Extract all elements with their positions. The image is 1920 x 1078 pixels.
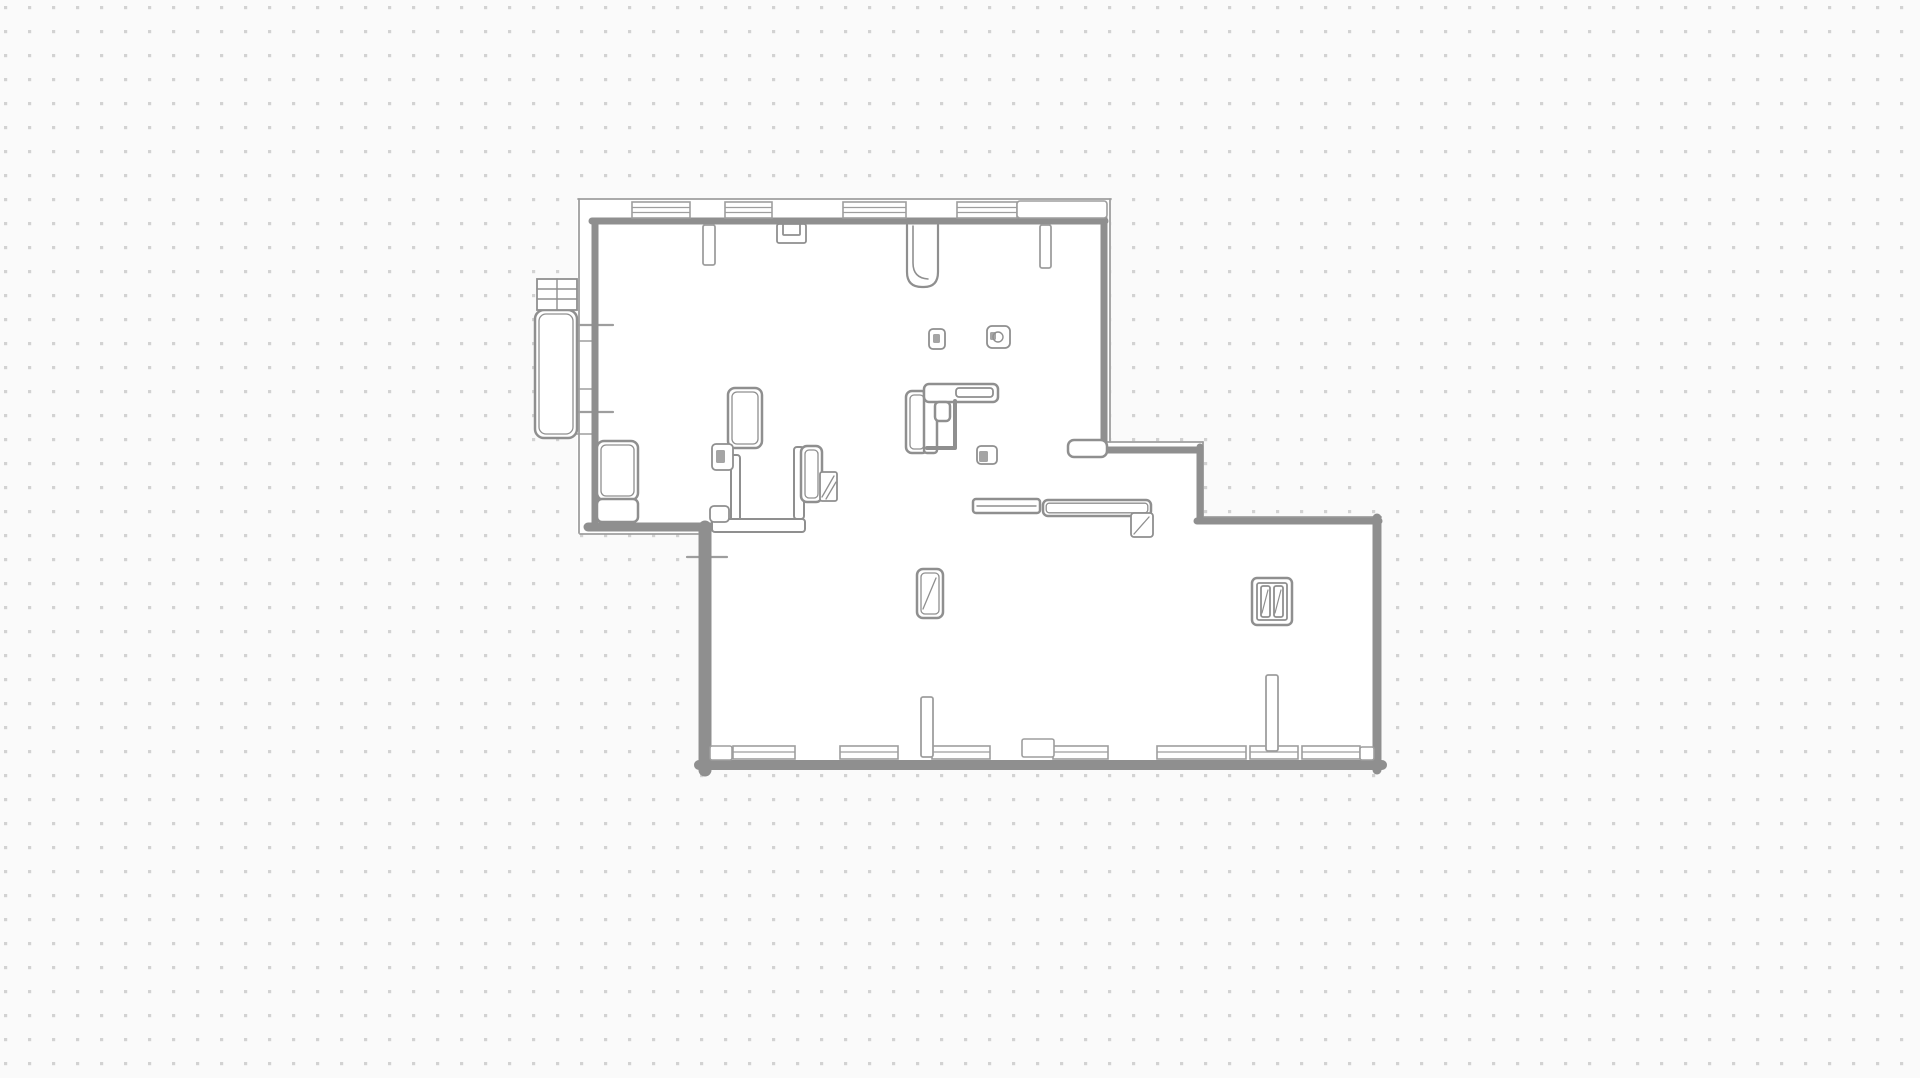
door-leaf-a[interactable]: [728, 388, 762, 448]
wall-stub: [1040, 225, 1051, 268]
window: [957, 202, 1017, 218]
niche-inner: [783, 224, 800, 235]
balcony[interactable]: [535, 310, 577, 438]
wall-stub: [703, 225, 715, 265]
wall-block: [710, 746, 732, 760]
window: [725, 202, 772, 218]
cabinet-a[interactable]: [597, 441, 638, 500]
cabinet-b[interactable]: [597, 499, 638, 522]
door-leaf-c-outline: [1068, 440, 1107, 457]
cabinet-b-outline: [597, 499, 638, 522]
counter-innerbar: [956, 388, 993, 397]
floorplan-canvas[interactable]: [0, 0, 1920, 1078]
chair-outline: [935, 402, 950, 421]
cabinet-a-outline: [597, 441, 638, 500]
shaded-fill: [979, 451, 988, 462]
door-leaf-b-outline: [801, 446, 822, 502]
floorplan-stage: [0, 0, 1920, 1078]
window: [843, 202, 906, 218]
chair[interactable]: [935, 402, 950, 421]
wall-stub: [1266, 675, 1278, 751]
wall-block: [1360, 747, 1374, 760]
door-leaf-c[interactable]: [1068, 440, 1107, 457]
door-leaf-b[interactable]: [801, 446, 822, 502]
shaded-fill: [933, 334, 940, 343]
wall-band-blank: [1017, 201, 1107, 218]
wall-block: [1022, 739, 1054, 757]
shaded-fill: [716, 450, 725, 463]
door-leaf-a-outline: [728, 388, 762, 448]
window: [632, 202, 690, 218]
pier-box: [710, 506, 729, 522]
balcony-outline: [535, 310, 577, 438]
wall-stub: [921, 697, 933, 757]
